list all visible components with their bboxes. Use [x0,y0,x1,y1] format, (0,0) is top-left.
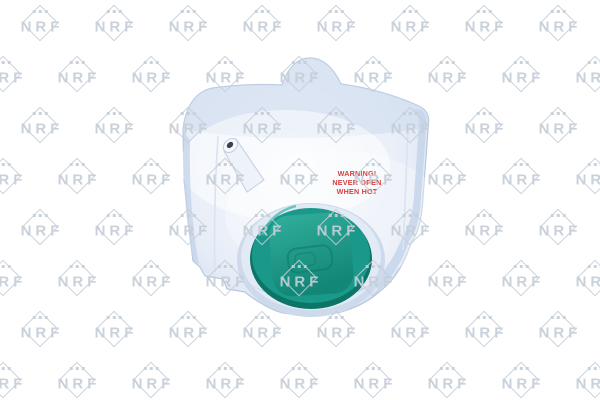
warning-line-2: NEVER OPEN [332,178,381,187]
warning-line-1: WARNING! [338,169,377,178]
cap-face [268,211,354,297]
warning-line-3: WHEN HOT [337,187,378,196]
expansion-tank-photo: WARNING! NEVER OPEN WHEN HOT [0,0,600,400]
product-photo-stage: WARNING! NEVER OPEN WHEN HOT NRFNRFNRFNR… [0,0,600,400]
warning-label: WARNING! NEVER OPEN WHEN HOT [332,169,381,196]
